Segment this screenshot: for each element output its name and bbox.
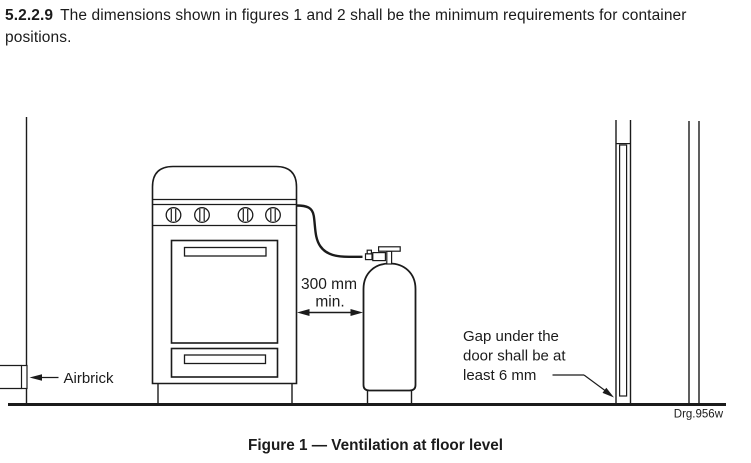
gap-note: Gap under the door shall be at least 6 m… [463, 328, 614, 398]
drawer-handle [185, 355, 266, 364]
stove-knob [195, 208, 210, 223]
stove-knob [238, 208, 253, 223]
stove-knob [266, 208, 281, 223]
clearance-qualifier-label: min. [315, 294, 344, 311]
clearance-dimension: 300 mm min. [297, 276, 363, 316]
stove [153, 167, 297, 405]
door-panel [620, 145, 627, 396]
oven-door-handle [185, 248, 267, 257]
document-page: 5.2.2.9The dimensions shown in figures 1… [0, 0, 751, 463]
gap-note-arrow [553, 375, 615, 398]
airbrick-label: Airbrick [64, 370, 115, 387]
gas-hose [297, 206, 363, 257]
gap-note-line3: least 6 mm [463, 367, 536, 384]
gap-note-line2: door shall be at [463, 348, 566, 365]
cylinder-valve [366, 247, 401, 264]
figure-caption: Figure 1 — Ventilation at floor level [0, 437, 751, 455]
wall-right [689, 121, 699, 404]
drawing-ref: Drg.956w [674, 409, 724, 421]
airbrick-symbol [0, 366, 27, 389]
stove-knob [166, 208, 181, 223]
gas-cylinder [364, 264, 416, 404]
gap-note-line1: Gap under the [463, 328, 559, 345]
figure-drawing: Airbrick [0, 0, 751, 463]
airbrick-arrow [30, 374, 59, 381]
clearance-value-label: 300 mm [301, 276, 357, 293]
